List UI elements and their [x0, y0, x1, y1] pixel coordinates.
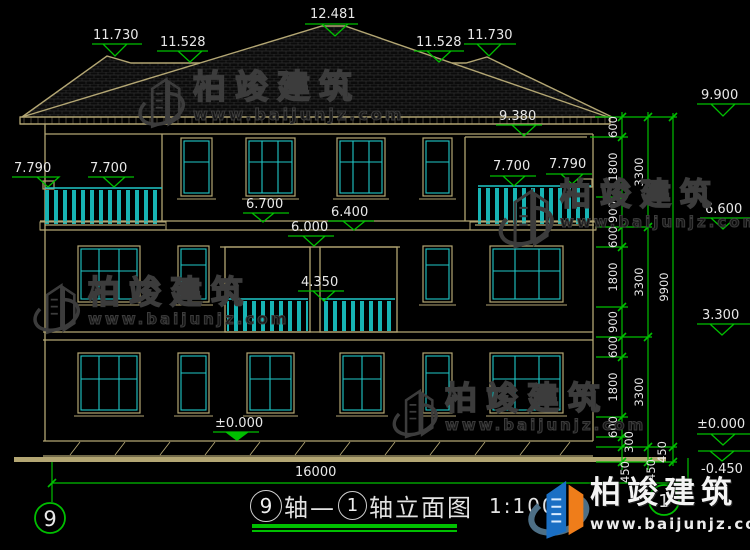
brand-logo: 柏竣建筑 www.baijunjz.com: [528, 466, 750, 550]
window: [174, 353, 213, 416]
window: [242, 138, 299, 199]
window: [419, 246, 456, 305]
title-axis-bubble-end: 1: [338, 491, 367, 520]
window: [486, 353, 567, 416]
title-axis-bubble-start: 9: [250, 490, 282, 522]
elevation-label: 6.700: [246, 198, 283, 211]
dim-label: 600: [606, 416, 620, 438]
elevation-label: 7.790: [549, 158, 586, 171]
window: [74, 353, 144, 416]
dim-label: 300: [622, 431, 636, 453]
elevation-label: 9.380: [499, 110, 536, 123]
elevation-label: 7.700: [493, 160, 530, 173]
dim-label: 3300: [632, 267, 646, 296]
cad-canvas: 9 1 600 1800 900 600 1800 900 600 1800 6…: [0, 0, 750, 550]
balcony-3f-right: [470, 179, 596, 230]
elevation-label: 11.730: [467, 29, 513, 42]
elevation-label: 12.481: [310, 8, 356, 21]
dim-label: 450: [655, 441, 669, 463]
window: [177, 138, 216, 199]
axis-bubble-9-label: 9: [43, 507, 56, 531]
elevation-label: 4.350: [301, 276, 338, 289]
window: [419, 353, 456, 416]
window: [486, 246, 567, 305]
elevation-label: 11.528: [160, 36, 206, 49]
dim-label: 9900: [657, 272, 671, 301]
window: [74, 246, 144, 305]
title-underline: [252, 524, 457, 528]
brand-url: www.baijunjz.com: [590, 515, 750, 533]
dim-label: 1800: [606, 152, 620, 181]
drawing-title: 9 轴— 1 轴立面图 1:100: [250, 488, 557, 523]
title-text-end: 轴立面图: [369, 488, 473, 523]
dim-chain-labels: 600 1800 900 600 1800 900 600 1800 600 3…: [606, 116, 671, 483]
elevation-label: ±0.000: [215, 417, 263, 430]
elevation-label: 11.730: [93, 29, 139, 42]
elevation-label: 7.700: [90, 162, 127, 175]
elevation-label: 6.600: [705, 203, 742, 216]
window: [333, 138, 389, 199]
plinth-hatch: [70, 442, 570, 455]
zero-level-marker-filled: [225, 432, 249, 441]
brand-logo-icon: [528, 468, 592, 548]
dim-label: 900: [606, 311, 620, 333]
elevation-label: 6.400: [331, 206, 368, 219]
brand-name: 柏竣建筑: [590, 478, 750, 509]
elevation-label: 9.900: [701, 89, 738, 102]
balcony-3f-left: [40, 181, 166, 230]
window: [419, 138, 456, 199]
floor-band-2f: [43, 332, 593, 340]
plinth-band: [43, 441, 593, 456]
elevation-label: ±0.000: [697, 418, 745, 431]
window: [336, 353, 388, 416]
elevation-label: 11.528: [416, 36, 462, 49]
elevation-label: 6.000: [291, 221, 328, 234]
title-underline-thin: [252, 530, 457, 532]
elevation-label: 3.300: [702, 309, 739, 322]
elevation-label: 7.790: [14, 162, 51, 175]
dim-label: 3300: [632, 377, 646, 406]
dim-label: 1800: [606, 262, 620, 291]
title-text-mid: 轴—: [284, 488, 336, 523]
dim-label: 3300: [632, 157, 646, 186]
total-width-label: 16000: [295, 466, 336, 479]
window: [174, 246, 213, 305]
dim-label: 1800: [606, 372, 620, 401]
dim-label: 900: [606, 201, 620, 223]
dim-label: 600: [606, 226, 620, 248]
window: [243, 353, 298, 416]
dim-label: 600: [606, 336, 620, 358]
dim-label: 600: [606, 116, 620, 138]
